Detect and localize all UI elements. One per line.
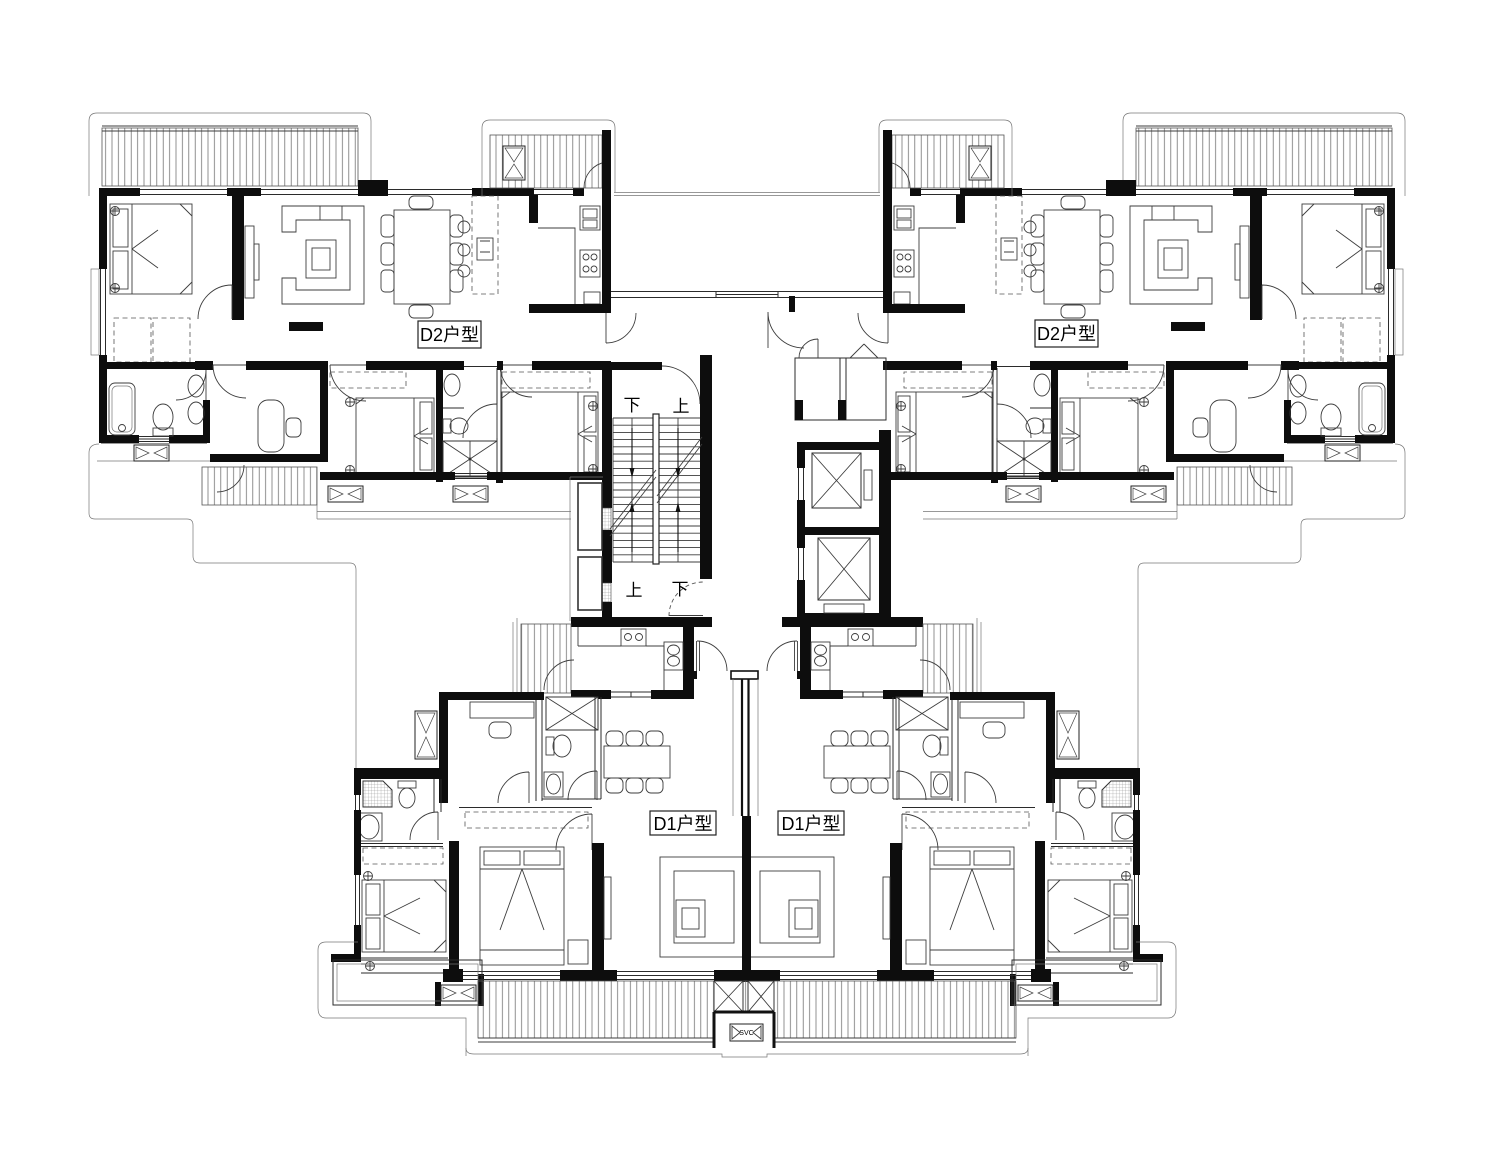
svg-text:下: 下	[672, 580, 689, 599]
svg-text:SVC: SVC	[739, 1030, 753, 1037]
svg-text:D1户型: D1户型	[653, 814, 712, 834]
svg-text:D2户型: D2户型	[1037, 324, 1096, 344]
svg-text:下: 下	[624, 396, 641, 415]
svg-text:上: 上	[626, 581, 643, 600]
svg-text:上: 上	[673, 397, 690, 416]
svg-text:D2户型: D2户型	[420, 325, 479, 345]
svg-text:D1户型: D1户型	[781, 814, 840, 834]
